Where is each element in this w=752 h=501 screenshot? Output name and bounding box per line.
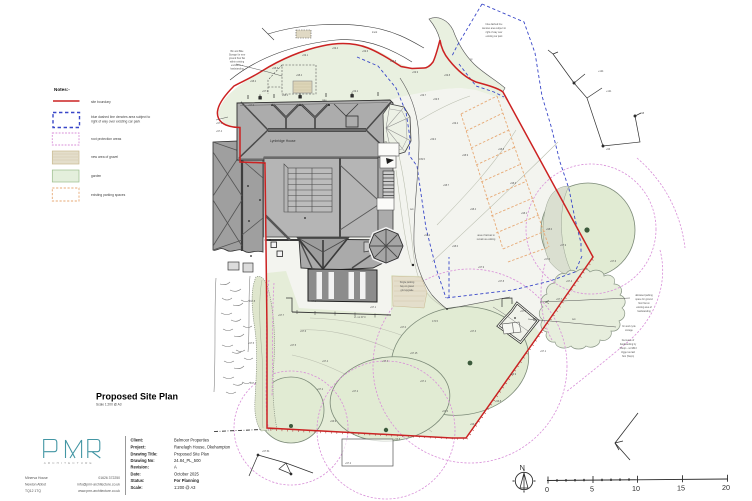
svg-text:+97.4: +97.4 [566, 280, 573, 283]
svg-text:existing area of: existing area of [636, 306, 652, 309]
svg-text:bay on gravel: bay on gravel [400, 285, 414, 288]
svg-text:track: track [372, 31, 378, 34]
svg-text:+98.9: +98.9 [462, 154, 469, 157]
svg-text:+96.7: +96.7 [470, 423, 477, 426]
svg-text:wm: wm [410, 208, 414, 211]
svg-text:N: N [520, 463, 525, 472]
svg-text:blue dashed line denotes area: blue dashed line denotes area subject to [91, 115, 150, 119]
svg-text:172: 172 [383, 141, 388, 144]
svg-text:0: 0 [545, 485, 549, 494]
svg-text:+97.0: +97.0 [442, 410, 449, 413]
svg-text:+97.9: +97.9 [478, 266, 485, 269]
svg-text:+99.9: +99.9 [412, 71, 419, 74]
svg-text:+97.8: +97.8 [249, 300, 256, 303]
svg-text:Belmoor Properties: Belmoor Properties [174, 438, 209, 443]
svg-text:+99.7: +99.7 [420, 94, 427, 97]
svg-text:root protection areas: root protection areas [91, 137, 122, 141]
svg-text:hardstanding: hardstanding [637, 310, 651, 313]
svg-text:ground floor flat: ground floor flat [229, 57, 245, 60]
svg-text:For Planning: For Planning [174, 478, 200, 483]
svg-text:1:200 @ A3: 1:200 @ A3 [174, 485, 196, 490]
svg-text:+98.2: +98.2 [424, 234, 431, 237]
svg-text:+99.1: +99.1 [302, 54, 309, 57]
svg-text:right of way over: right of way over [486, 31, 503, 34]
svg-text:+97.6: +97.6 [544, 258, 551, 261]
svg-text:+97.2: +97.2 [317, 388, 324, 391]
svg-text:+97.1: +97.1 [370, 306, 377, 309]
svg-text:allocated parking: allocated parking [635, 294, 653, 297]
svg-text:+97.4: +97.4 [322, 360, 329, 363]
svg-text:Single parking: Single parking [400, 281, 415, 284]
svg-text:Lynbridge House: Lynbridge House [270, 139, 296, 143]
svg-text:01626 372250: 01626 372250 [98, 476, 120, 480]
svg-text:gate: gate [322, 99, 327, 102]
svg-text:denotes area subject to: denotes area subject to [482, 27, 507, 30]
svg-text:+99.2: +99.2 [452, 122, 459, 125]
svg-text:15sqm - no.9843: 15sqm - no.9843 [619, 348, 637, 350]
svg-text:+97.5: +97.5 [290, 344, 297, 347]
svg-text:Scale 1:200 @ A3: Scale 1:200 @ A3 [96, 403, 122, 407]
svg-text:+97.2: +97.2 [352, 390, 359, 393]
svg-text:+96.8: +96.8 [495, 400, 502, 403]
svg-text:within existing: within existing [230, 61, 245, 64]
svg-text:+98.6: +98.6 [272, 67, 279, 70]
svg-text:existing parking spaces: existing parking spaces [91, 193, 126, 197]
svg-text:wm: wm [572, 318, 576, 321]
svg-text:Notes:-: Notes:- [54, 87, 70, 92]
svg-text:+97.9: +97.9 [248, 104, 255, 107]
svg-text:+98.1: +98.1 [521, 212, 528, 215]
svg-text:+121: +121 [606, 90, 612, 93]
svg-text:+99.4: +99.4 [332, 47, 339, 50]
svg-text:+97.54: +97.54 [262, 450, 270, 453]
svg-text:Proposed Site Plan: Proposed Site Plan [174, 451, 210, 456]
svg-text:Drawing Title:: Drawing Title: [131, 451, 158, 456]
svg-text:bin and cycle: bin and cycle [622, 326, 636, 328]
svg-text:+97.5: +97.5 [520, 310, 527, 313]
svg-text:+99.8: +99.8 [444, 74, 451, 77]
svg-text:+98: +98 [640, 112, 645, 115]
svg-text:Storage for new: Storage for new [229, 54, 246, 57]
svg-text:Scale:: Scale: [131, 485, 143, 490]
svg-text:hardstanding by: hardstanding by [620, 343, 637, 346]
svg-text:+98.7: +98.7 [443, 184, 450, 187]
svg-text:Drawing No:: Drawing No: [131, 458, 155, 463]
svg-text:+96.9: +96.9 [330, 420, 337, 423]
svg-text:+98.1: +98.1 [282, 94, 289, 97]
svg-text:+99.0: +99.0 [430, 138, 437, 141]
svg-text:+97.1: +97.1 [540, 350, 547, 353]
svg-text:space for ground: space for ground [635, 298, 653, 301]
svg-text:10: 10 [632, 484, 640, 493]
svg-text:172.5: 172.5 [432, 320, 439, 323]
svg-text:Revision:: Revision: [131, 465, 149, 470]
svg-text:+97.15: +97.15 [410, 352, 418, 355]
svg-text:24.84_PL_500: 24.84_PL_500 [174, 458, 201, 463]
svg-text:blue dashed line: blue dashed line [486, 24, 503, 26]
svg-text:+97.3: +97.3 [470, 330, 477, 333]
svg-text:hardstanding: hardstanding [230, 68, 244, 71]
svg-text:169.5: 169.5 [419, 158, 426, 161]
svg-text:5: 5 [590, 485, 594, 494]
svg-text:Proposed Site Plan: Proposed Site Plan [96, 392, 178, 402]
svg-text:gy: gy [470, 58, 473, 61]
svg-text:+96.9: +96.9 [510, 373, 517, 376]
svg-text:+97.8: +97.8 [498, 280, 505, 283]
svg-text:+99.2: +99.2 [352, 90, 359, 93]
svg-text:Status:: Status: [131, 478, 145, 483]
svg-text:+97.6: +97.6 [300, 330, 307, 333]
svg-text:www.pmr-architecture.co.uk: www.pmr-architecture.co.uk [78, 489, 120, 493]
svg-text:+98.0: +98.0 [452, 245, 459, 248]
svg-text:+96: +96 [606, 148, 611, 151]
svg-text:trigger as laid: trigger as laid [621, 351, 636, 354]
svg-text:Project:: Project: [131, 445, 146, 450]
svg-text:garden: garden [91, 174, 101, 178]
svg-text:site boundary: site boundary [91, 100, 111, 104]
svg-text:15: 15 [677, 484, 685, 493]
svg-text:+97.5: +97.5 [248, 342, 255, 345]
svg-text:+98.2: +98.2 [250, 80, 257, 83]
svg-text:Minerva House: Minerva House [25, 476, 48, 480]
svg-text:+99.6: +99.6 [362, 50, 369, 53]
svg-text:storage: storage [625, 329, 633, 332]
svg-text:+124: +124 [598, 70, 604, 73]
svg-text:+98.0: +98.0 [546, 228, 553, 231]
svg-text:info@pmr-architecture.co.uk: info@pmr-architecture.co.uk [77, 483, 120, 487]
svg-text:floor flat on: floor flat on [638, 302, 650, 305]
svg-text:enclosure +: enclosure + [231, 64, 244, 67]
svg-text:Decrease of: Decrease of [622, 339, 635, 342]
svg-text:+98.8: +98.8 [498, 148, 505, 151]
svg-text:existing car park: existing car park [486, 35, 504, 38]
svg-text:Ranelagh House, Okehampton: Ranelagh House, Okehampton [174, 445, 231, 450]
svg-text:+97.7: +97.7 [278, 314, 285, 317]
svg-text:+97.6: +97.6 [610, 260, 617, 263]
svg-text:remain as existing: remain as existing [477, 238, 496, 241]
svg-text:+98.3: +98.3 [510, 182, 517, 185]
svg-text:+97.5: +97.5 [216, 122, 223, 125]
svg-text:A: A [174, 465, 177, 470]
svg-text:Newton Abbot: Newton Abbot [25, 483, 46, 487]
svg-text:+97.7: +97.7 [556, 298, 563, 301]
svg-text:Non (5sqm): Non (5sqm) [622, 356, 634, 358]
svg-text:ARCHITECTURE: ARCHITECTURE [44, 461, 94, 465]
svg-text:+/- ret 97.0: +/- ret 97.0 [354, 316, 366, 319]
svg-text:+97.9: +97.9 [262, 90, 269, 93]
svg-text:Client:: Client: [131, 438, 144, 443]
svg-text:+99.8: +99.8 [390, 60, 397, 63]
svg-text:+97.1: +97.1 [420, 380, 427, 383]
svg-text:+97.2: +97.2 [345, 462, 352, 465]
svg-text:20: 20 [722, 483, 730, 492]
svg-text:new area of gravel: new area of gravel [91, 155, 118, 159]
svg-text:TQ12 1TQ: TQ12 1TQ [25, 489, 41, 493]
svg-text:+97.9: +97.9 [560, 244, 567, 247]
svg-text:+97.3: +97.3 [382, 360, 389, 363]
svg-text:+97.3: +97.3 [250, 382, 257, 385]
svg-text:+96.8: +96.8 [394, 438, 401, 441]
svg-text:+97.3: +97.3 [310, 300, 317, 303]
svg-text:+98.4: +98.4 [296, 74, 303, 77]
svg-text:right of way over existing car: right of way over existing car park [91, 120, 140, 124]
svg-text:+97.0: +97.0 [400, 326, 407, 329]
svg-text:+99.5: +99.5 [433, 98, 440, 101]
svg-text:+97.4: +97.4 [216, 130, 223, 133]
svg-text:grid upgrade: grid upgrade [401, 289, 415, 292]
svg-text:area of tarmac to: area of tarmac to [477, 234, 495, 237]
svg-text:October 2025: October 2025 [174, 472, 200, 477]
svg-text:Bin and Bike: Bin and Bike [231, 51, 245, 53]
svg-text:+98.4: +98.4 [470, 208, 477, 211]
svg-text:Date:: Date: [131, 472, 141, 477]
